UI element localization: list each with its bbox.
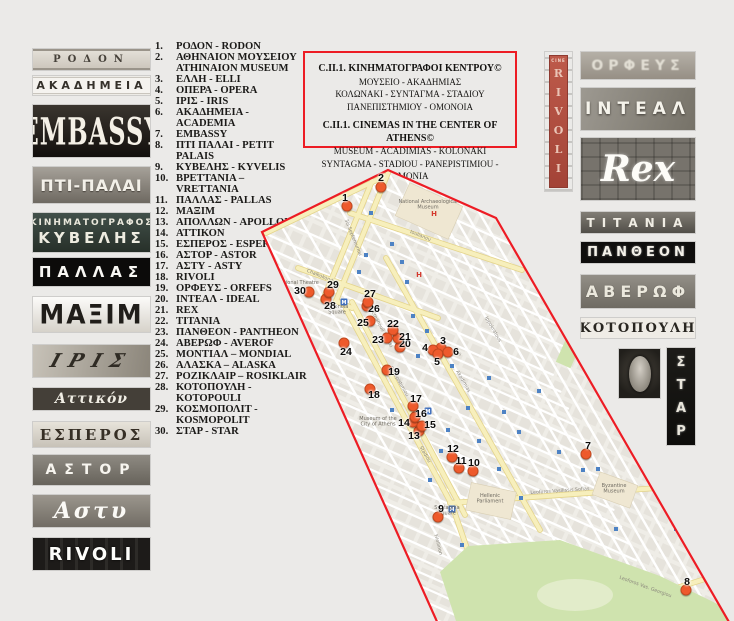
- sign-letter: Τ: [677, 374, 686, 397]
- sign-text: ΚΟΤΟΠΟΥΛΗ: [581, 321, 695, 336]
- zappeion-area: [537, 579, 613, 611]
- photo-sign-inteal: ΙΝΤΕΑΛ: [581, 88, 695, 130]
- photo-sign-kotopouli: ΚΟΤΟΠΟΥΛΗ: [581, 318, 695, 338]
- photo-sign-star-vertical: ΣΤΑΡ: [667, 348, 695, 445]
- sign-letter: V: [554, 102, 563, 121]
- sign-letter: Ρ: [676, 420, 686, 443]
- place-label: ByzantineMuseum: [602, 483, 627, 495]
- sign-letter: I: [556, 83, 561, 102]
- sign-letter: Σ: [677, 351, 686, 374]
- photo-sign-owl-relief: [619, 349, 660, 398]
- sign-letter: L: [555, 140, 563, 159]
- sign-text: ΙΝΤΕΑΛ: [585, 99, 691, 119]
- svg-text:M: M: [426, 409, 431, 415]
- sign-header-text: CINE: [551, 58, 566, 63]
- place-label: HellenicParliament: [477, 493, 504, 505]
- sign-text: ΤΙΤΑΝΙΑ: [587, 216, 690, 230]
- sign-letter: I: [556, 159, 561, 178]
- sign-text: ΠΑΝΘΕΟΝ: [587, 245, 689, 260]
- photo-sign-pantheon: ΠΑΝΘΕΟΝ: [581, 242, 695, 263]
- sign-text: ΑΒΕΡΩΦ: [586, 282, 690, 301]
- photo-sign-orfeys: ΟΡΦΕΥΣ: [581, 52, 695, 79]
- sign-text: Rex: [601, 148, 675, 190]
- owl-relief-icon: [629, 356, 651, 392]
- sign-letter: R: [554, 64, 563, 83]
- vertical-neon-sign: CINERIVOLI: [549, 55, 568, 188]
- sign-letter: O: [554, 121, 564, 140]
- place-label: Museum of theCity of Athens: [359, 416, 396, 428]
- place-label: OmonoiaSquare: [326, 304, 349, 316]
- athens-cinemas-map-figure: ΡΟΔΟΝΑΚΑΔΗΜΕΙΑEMBASSYΠΤΙ-ΠΑΛΑΙΚΙΝΗΜΑΤΟΓΡ…: [0, 0, 734, 621]
- photo-sign-cine-rivoli-vertical: CINERIVOLI: [545, 52, 572, 191]
- photo-sign-averof: ΑΒΕΡΩΦ: [581, 275, 695, 308]
- sign-text: ΟΡΦΕΥΣ: [591, 58, 684, 74]
- svg-text:H: H: [431, 210, 437, 218]
- svg-text:H: H: [416, 271, 422, 279]
- sign-letter: Α: [676, 397, 686, 420]
- photo-sign-titania: ΤΙΤΑΝΙΑ: [581, 212, 695, 233]
- photo-sign-rex: Rex: [581, 138, 695, 200]
